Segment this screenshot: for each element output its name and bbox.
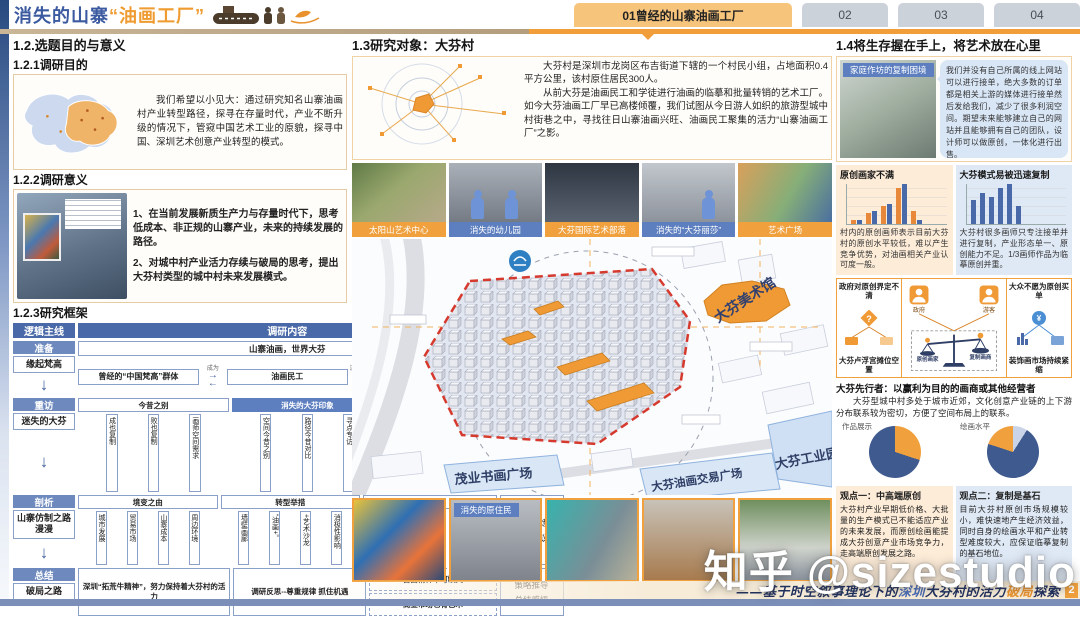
dafen-location-radial-map	[356, 60, 520, 148]
original-vs-copy-dilemma-diagram: 政府对原创界定不清 ? 大芬卢浮宫摊位空置 政府 游客	[836, 278, 1072, 378]
photo-label: 艺术广场	[738, 222, 832, 237]
research-framework-table: 逻辑主线 调研内容 研究方法 准备 缘起梵高 ↓ 山寨油画，世界大芬 曾经的“中…	[13, 323, 347, 613]
photo-label: 消失的“大芬丽莎”	[642, 222, 736, 237]
pie-painting-level-wrap: 绘画水平	[954, 421, 1072, 483]
public-unwilling-panel: 大众不愿为原创买单 ¥ 装饰画市场持续紧缩	[1007, 279, 1071, 377]
person-silhouette	[471, 197, 484, 219]
pie-label: 绘画水平	[960, 421, 990, 432]
photo-teal-alley	[545, 498, 639, 582]
stage-chip: 准备	[13, 341, 75, 354]
balance-scale-diagram: 政府 游客 原创画家 复制画商	[902, 279, 1006, 377]
workshop-photo-label: 家庭作坊的复制困境	[843, 63, 934, 77]
double-arrow-icon: 成为 → ←	[201, 366, 225, 388]
pie-chart-works-display	[869, 426, 921, 478]
viewpoint-2-copy-is-cornerstone: 观点二：复制是基石 目前大芬村原创市场规模较小，难快速地产生经济效益，同时自身的…	[956, 486, 1073, 588]
group-past-vs-present: 今昔之别 成也复制 败也复制 画师空间需求	[78, 398, 229, 492]
research-significance-box: 1、在当前发展新质生产力与存量时代下，思考低成本、非正规的山寨产业，未来的持续发…	[13, 189, 347, 303]
viewpoint-1-high-end-original: 观点一：中高端原创 大芬村产业早期低价格、大批量的生产模式已不能适应产业的未来发…	[836, 486, 953, 588]
tab-02[interactable]: 02	[802, 3, 888, 27]
conveyor-painters-icon	[211, 4, 323, 26]
viewpoint-text: 大芬村产业早期低价格、大批量的生产模式已不能适应产业的未来发展，而原创绘画能提成…	[840, 504, 949, 559]
tab-04[interactable]: 04	[994, 3, 1080, 27]
chart-caption: 村内的原创画师表示目前大芬村的原创水平较低，难以产生竞争优势，对油画相关产业认可…	[840, 228, 949, 271]
section-1-2-3-title: 1.2.3研究框架	[13, 304, 347, 321]
bar-chart-copy-mode	[966, 184, 1067, 225]
section-1-2-purpose: 1.2.选题目的与意义 1.2.1调研目的 我们希望以小见大：通过研究知名山寨油…	[13, 33, 347, 584]
intro-paragraph-1: 大芬村是深圳市龙岗区布吉街道下辖的一个村民小组，占地面积0.4平方公里，该村原住…	[524, 60, 828, 87]
panel-caption: 装饰画市场持续紧缩	[1008, 356, 1070, 374]
photo-sunhill-art-center: 太阳山艺术中心	[352, 163, 446, 237]
viewpoint-title: 观点一：中高端原创	[840, 489, 949, 502]
title-orange-part: “油画工厂”	[109, 6, 205, 26]
stage-chip: 总结	[13, 568, 75, 581]
person-silhouette	[505, 197, 518, 219]
photo-image	[738, 163, 832, 222]
painting-collage	[23, 213, 61, 261]
photo-image	[352, 163, 446, 222]
flow-box-painter-workers: 油画民工	[227, 369, 348, 385]
stage-label: 山寨仿制之路漫漫	[13, 510, 75, 539]
pie-charts-row: 作品展示 绘画水平	[836, 421, 1072, 483]
stage-label: 迷失的大芬	[13, 413, 75, 430]
photo-image	[642, 163, 736, 222]
stage-chip: 剖析	[13, 495, 75, 508]
photo-lost-natives-street: 消失的原住民	[449, 498, 543, 582]
pioneers-text: 大芬型城中村多处于城市近郊，文化创意产业链的上下游分布联系较为密切，方便了空间布…	[836, 396, 1072, 420]
guangdong-province-map	[17, 82, 133, 162]
footer-caption-bar: ——基于时空叙事理论下的深圳大芬村的活力破局探索 2	[0, 581, 1080, 599]
stage-analyze: 剖析 山寨仿制之路漫漫 ↓	[13, 495, 75, 565]
title-blue-part: 消失的山寨	[14, 6, 109, 26]
photo-orange-buildings	[642, 498, 736, 582]
chart-title: 原创画家不满	[840, 168, 949, 181]
photo-label: 大芬国际艺术部落	[545, 222, 639, 237]
photo-lost-dafen-lisa: 消失的“大芬丽莎”	[642, 163, 736, 237]
isometric-village-map-area: 大芬美术馆 茂业书画广场 大芬油画交易广场 大芬工业园	[352, 239, 832, 495]
natives-label: 消失的原住民	[454, 503, 519, 517]
section-1-2-1-title: 1.2.1调研目的	[13, 56, 347, 73]
down-arrow-icon: ↓	[13, 432, 75, 492]
tab-01-former-oil-painting-factory[interactable]: 01曾经的山寨油画工厂	[574, 3, 792, 27]
framework-header-logic: 逻辑主线	[13, 323, 75, 338]
viewpoints-row: 观点一：中高端原创 大芬村产业早期低价格、大批量的生产模式已不能适应产业的未来发…	[836, 486, 1072, 588]
landmark-photo-strip: 太阳山艺术中心 消失的幼儿园 大芬国际艺术部落 消失的“大芬丽莎” 艺术广场	[352, 163, 832, 237]
tab-03[interactable]: 03	[898, 3, 984, 27]
poster-page: 消失的山寨“油画工厂” 01曾经的山寨油画工厂 02 03 04 1.2.选题目…	[0, 0, 1080, 606]
panel-title: 大众不愿为原创买单	[1008, 282, 1070, 300]
page-title: 消失的山寨“油画工厂”	[14, 2, 205, 28]
section-1-4-survival-and-art: 1.4将生存握在手上，将艺术放在心里 家庭作坊的复制困境 我们并没有自己所属的线…	[836, 33, 1072, 584]
scale-left-label: 原创画家	[917, 355, 939, 363]
stage-chip: 重访	[13, 398, 75, 411]
photo-international-art-quarter: 大芬国际艺术部落	[545, 163, 639, 237]
dafen-intro-box: 大芬村是深圳市龙岗区布吉街道下辖的一个村民小组，占地面积0.4平方公里，该村原住…	[352, 56, 832, 160]
workshop-photo: 家庭作坊的复制困境	[840, 60, 936, 158]
pie-works-display-wrap: 作品展示	[836, 421, 954, 483]
panel-caption: 大芬卢浮宫摊位空置	[838, 356, 900, 374]
bottom-blue-bar	[0, 599, 1080, 606]
chapter-tabs: 01曾经的山寨油画工厂 02 03 04	[574, 3, 1080, 27]
family-workshop-box: 家庭作坊的复制困境 我们并没有自己所属的线上网站可以进行接单，绝大多数的订单都是…	[836, 56, 1072, 162]
viewpoint-title: 观点二：复制是基石	[960, 489, 1069, 502]
pie-chart-painting-level	[987, 426, 1039, 478]
person-silhouette	[702, 197, 715, 219]
photo-label: 消失的幼儿园	[449, 222, 543, 237]
svg-text:¥: ¥	[1037, 314, 1042, 323]
significance-text: 1、在当前发展新质生产力与存量时代下，思考低成本、非正规的山寨产业，未来的持续发…	[133, 193, 343, 299]
bar-chart-original-painters	[846, 184, 947, 225]
survey-charts-row: 原创画家不满 村内的原创画师表示目前大芬村的原创水平较低，难以产生竞争优势，对油…	[836, 165, 1072, 275]
chart-box-original-painters: 原创画家不满 村内的原创画师表示目前大芬村的原创水平较低，难以产生竞争优势，对油…	[836, 165, 953, 275]
svg-text:?: ?	[866, 314, 872, 324]
scale-right-label: 复制画商	[969, 353, 992, 361]
chart-caption: 大芬村很多画师只专注接单并进行复制，产业形态单一、原创能力不足。1/3画师作品为…	[960, 228, 1069, 271]
yuan-circle-icon: ¥	[1011, 310, 1067, 346]
research-purpose-text: 我们希望以小见大：通过研究知名山寨油画村产业转型路径，探寻在存量时代，产业不断升…	[137, 94, 343, 149]
stage-revisit: 重访 迷失的大芬 ↓	[13, 398, 75, 492]
pioneers-title: 大芬先行者：以赢利为目的的画商或其他经营者	[836, 381, 1072, 395]
speech-bubble-placeholder	[62, 196, 124, 232]
government-definition-panel: 政府对原创界定不清 ? 大芬卢浮宫摊位空置	[837, 279, 901, 377]
down-arrow-icon: ↓	[13, 541, 75, 566]
stage-prepare: 准备 缘起梵高 ↓	[13, 341, 75, 395]
painter-interview-photo	[17, 193, 127, 299]
photo-label: 太阳山艺术中心	[352, 222, 446, 237]
metro-station-icon	[509, 250, 531, 272]
photo-colorful-mural-building	[352, 498, 446, 582]
section-1-4-title: 1.4将生存握在手上，将艺术放在心里	[836, 35, 1072, 54]
section-1-2-2-title: 1.2.2调研意义	[13, 171, 347, 188]
dafen-pioneers-section: 大芬先行者：以赢利为目的的画商或其他经营者 大芬型城中村多处于城市近郊，文化创意…	[836, 381, 1072, 483]
significance-point-2: 2、对城中村产业活力存续与破局的思考，提出大芬村类型的城中村未来发展模式。	[133, 257, 343, 285]
balance-scale-panel: 政府 游客 原创画家 复制画商	[901, 279, 1007, 377]
dafen-intro-text: 大芬村是深圳市龙岗区布吉街道下辖的一个村民小组，占地面积0.4平方公里，该村原住…	[524, 60, 828, 156]
significance-point-1: 1、在当前发展新质生产力与存量时代下，思考低成本、非正规的山寨产业，未来的持续发…	[133, 208, 343, 250]
photo-lost-kindergarten: 消失的幼儿园	[449, 163, 543, 237]
chart-title: 大芬模式易被迅速复制	[960, 168, 1069, 181]
down-arrow-icon: ↓	[13, 375, 75, 395]
section-1-3-title: 1.3研究对象：大芬村	[352, 35, 832, 54]
group-reasons-of-change: 境变之由 城市发展 贸易市场 山寨成本 周边环境	[78, 495, 218, 565]
group-transformation-measures: 转型举措 墙壁画廊 “油画+” +艺术沙龙 消极性影响	[221, 495, 361, 565]
section-1-3-research-object: 1.3研究对象：大芬村 大芬村是深圳市龙岗区布吉街道下辖	[352, 33, 832, 584]
painter-quote-bubble: 我们并没有自己所属的线上网站可以进行接单，绝大多数的订单都是相关上游的媒体进行接…	[940, 60, 1068, 158]
left-edge-gradient-stripe	[0, 0, 9, 606]
flow-box-vangogh-group: 曾经的“中国梵高”群体	[78, 369, 199, 385]
research-purpose-box: 我们希望以小见大：通过研究知名山寨油画村产业转型路径，探寻在存量时代，产业不断升…	[13, 74, 347, 170]
intro-paragraph-2: 从前大芬是油画民工和学徒进行油画的临摹和批量转销的艺术工厂。如今大芬油画工厂早已…	[524, 87, 828, 141]
header: 消失的山寨“油画工厂” 01曾经的山寨油画工厂 02 03 04	[14, 0, 1080, 29]
street-photo-strip: 消失的原住民	[352, 498, 832, 582]
photo-image	[545, 163, 639, 222]
stage-label: 缘起梵高	[13, 356, 75, 373]
question-diamond-icon: ?	[841, 310, 897, 346]
photo-street-trees	[738, 498, 832, 582]
panel-title: 政府对原创界定不清	[838, 282, 900, 300]
actor-tourist-label: 游客	[983, 306, 995, 314]
photo-image	[449, 163, 543, 222]
section-1-2-title: 1.2.选题目的与意义	[13, 35, 347, 54]
viewpoint-text: 目前大芬村原创市场规模较小，难快速地产生经济效益，同时自身的绘画水平和产业转型难…	[960, 504, 1069, 559]
page-number-badge: 2	[1065, 583, 1078, 598]
chart-box-copy-mode: 大芬模式易被迅速复制 大芬村很多画师只专注接单并进行复制，产业形态单一、原创能力…	[956, 165, 1073, 275]
photo-art-plaza: 艺术广场	[738, 163, 832, 237]
isometric-village-map: 大芬美术馆 茂业书画广场 大芬油画交易广场 大芬工业园	[352, 239, 832, 495]
actor-government-label: 政府	[913, 306, 925, 314]
pie-label: 作品展示	[842, 421, 872, 432]
poster-subtitle: ——基于时空叙事理论下的深圳大芬村的活力破局探索	[736, 581, 1060, 600]
